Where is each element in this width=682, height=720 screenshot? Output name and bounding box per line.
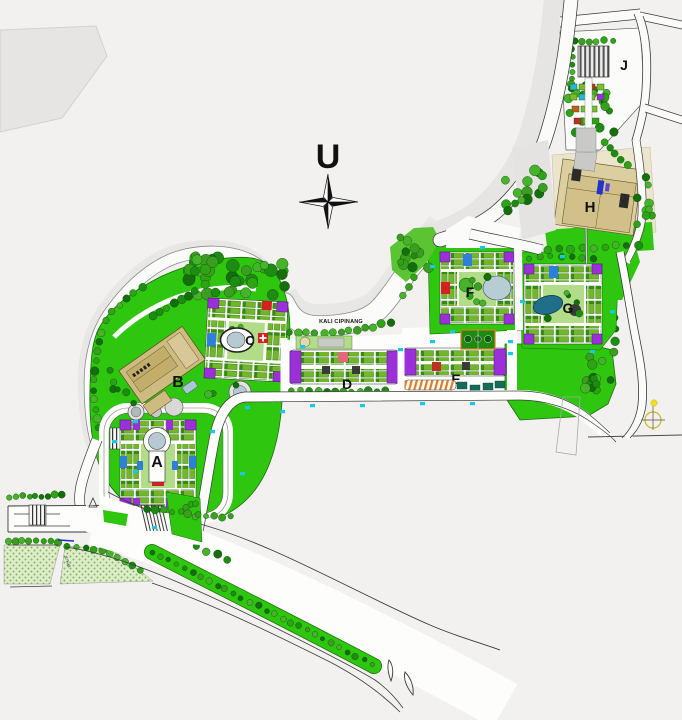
svg-text:U: U [316, 138, 341, 176]
svg-text:H: H [585, 199, 596, 216]
svg-text:KALI CIPINANG: KALI CIPINANG [319, 319, 363, 325]
svg-text:F: F [466, 284, 475, 300]
svg-text:C: C [245, 333, 255, 348]
svg-text:B: B [172, 374, 184, 391]
svg-text:G: G [563, 300, 574, 316]
svg-text:J: J [620, 57, 628, 73]
svg-text:A: A [151, 454, 163, 471]
